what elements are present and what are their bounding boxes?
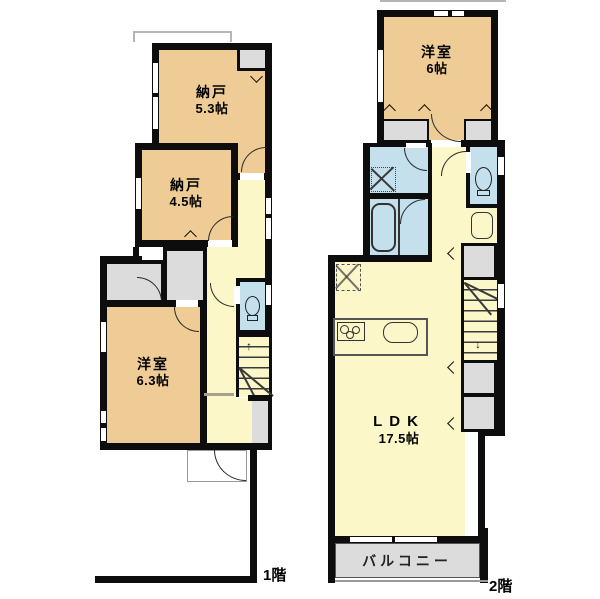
boundary-line (95, 576, 257, 583)
room-name: LDK (349, 413, 449, 431)
room-size: 4.5帖 (156, 194, 216, 210)
window (350, 537, 392, 542)
wall (328, 255, 335, 543)
boundary-line (250, 448, 257, 583)
room-size: 17.5帖 (349, 431, 449, 447)
door-opening (234, 286, 240, 304)
stairs-1f: ↑ (236, 334, 269, 397)
floor-plan-canvas: ↑ 納戸 5.3帖 納戸 4.5帖 洋室 6.3帖 1階 (0, 0, 600, 599)
window (266, 285, 271, 305)
washer-pan-icon (371, 167, 396, 192)
wall (480, 528, 488, 583)
wall (328, 536, 335, 583)
window (101, 322, 106, 352)
room-ldk (328, 262, 465, 543)
window (266, 198, 271, 214)
room-name: 納戸 (182, 84, 242, 101)
door-opening (208, 240, 232, 247)
balcony-edge-line (335, 580, 488, 582)
wall (478, 430, 485, 537)
room-label-yoshitsu-6: 洋室 6帖 (407, 44, 467, 76)
bath-partition (398, 199, 400, 255)
eave-line (133, 31, 232, 33)
window (378, 50, 383, 102)
window (395, 537, 437, 542)
room-label-nando-4-5: 納戸 4.5帖 (156, 177, 216, 209)
wall (133, 247, 139, 259)
wall (328, 255, 432, 262)
fridge-space (336, 264, 361, 291)
door-opening (240, 173, 264, 180)
stove-icon (337, 322, 365, 341)
stairs-up-arrow-icon: ↑ (246, 340, 252, 352)
wall (100, 443, 272, 450)
entrance-step (204, 393, 234, 396)
closet (237, 50, 265, 71)
room-name: 納戸 (156, 177, 216, 194)
toilet-icon (245, 296, 260, 323)
washbasin-icon (471, 212, 493, 239)
balcony-label: バルコニー (352, 551, 462, 571)
bathtub-icon (371, 203, 396, 252)
closet (461, 360, 497, 432)
stairs-down-arrow-icon: ↓ (475, 338, 481, 350)
room-label-ldk: LDK 17.5帖 (349, 413, 449, 447)
eave-line (133, 31, 135, 42)
window (153, 63, 158, 93)
door-opening (466, 152, 471, 173)
wall (268, 395, 272, 447)
entrance-porch (252, 401, 268, 443)
eave-line (230, 31, 232, 42)
window (498, 284, 504, 308)
room-size: 6帖 (407, 61, 467, 77)
room-label-yoshitsu-6-3: 洋室 6.3帖 (123, 356, 183, 388)
stairs-2f: ↓ (461, 280, 497, 360)
toilet-icon (475, 167, 492, 199)
window (498, 157, 504, 175)
room-name: 洋室 (123, 356, 183, 373)
window (434, 11, 448, 16)
closet (464, 119, 491, 140)
closet (461, 243, 497, 280)
room-size: 5.3帖 (182, 101, 242, 117)
eave-line (380, 0, 506, 2)
closet (384, 119, 429, 140)
window (452, 11, 464, 16)
room-name: 洋室 (407, 44, 467, 61)
room-label-nando-5-3: 納戸 5.3帖 (182, 84, 242, 116)
window (153, 97, 158, 129)
sink-icon (383, 322, 418, 343)
window (101, 411, 106, 423)
window (266, 218, 271, 239)
closet (163, 247, 207, 305)
room-size: 6.3帖 (123, 373, 183, 389)
entrance-hall-1f (236, 398, 252, 445)
window (101, 428, 106, 441)
door-opening (176, 300, 198, 307)
floor-label-1f: 1階 (263, 564, 286, 585)
window (136, 178, 141, 209)
floor-label-2f: 2階 (489, 575, 512, 596)
